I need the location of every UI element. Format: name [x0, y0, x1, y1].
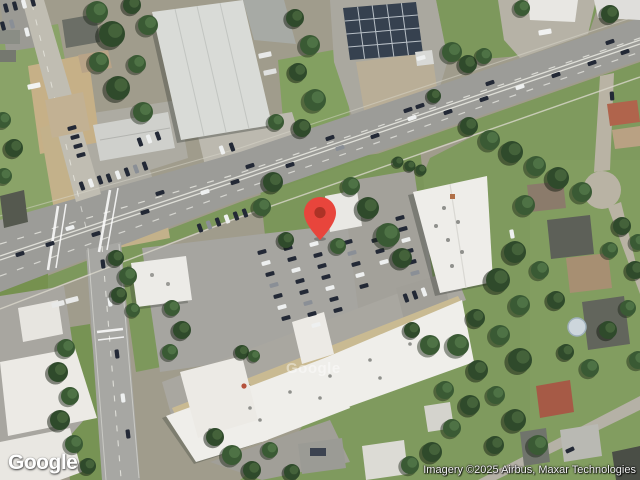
map-marker[interactable]: [303, 196, 337, 242]
map-marker-body[interactable]: [304, 197, 336, 240]
imagery-attribution: Imagery ©2025 Airbus, Maxar Technologies: [423, 464, 636, 476]
building-bank: [131, 256, 192, 307]
map-viewport[interactable]: Google Google Imagery ©2025 Airbus, Maxa…: [0, 0, 640, 480]
map-marker-dot: [314, 207, 325, 218]
google-logo[interactable]: Google: [8, 451, 77, 475]
